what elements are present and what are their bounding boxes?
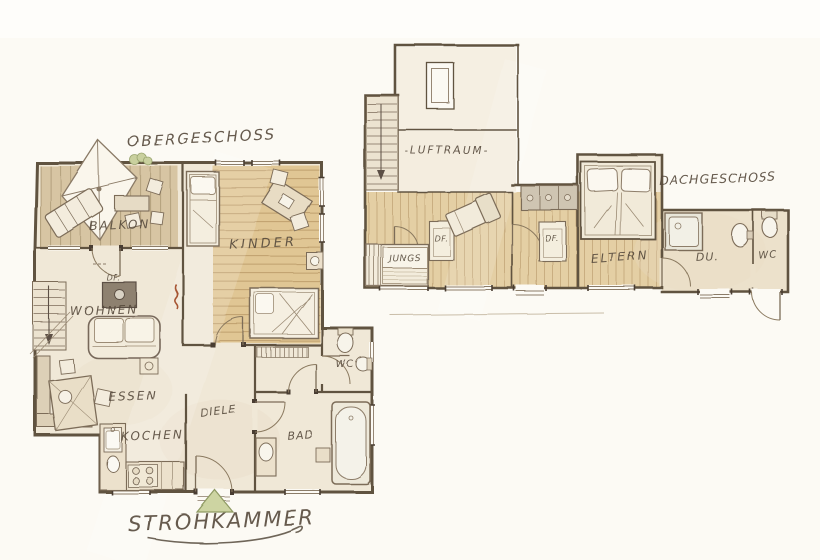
- toilet: [762, 211, 777, 237]
- room-label-du: DU.: [695, 250, 718, 264]
- roof-window-label-dg-1: DF.: [434, 234, 448, 243]
- staircase: [366, 96, 398, 190]
- wardrobe: [521, 186, 578, 210]
- room-label-wohnen: WOHNEN: [70, 302, 138, 318]
- desk-chair: [271, 170, 289, 187]
- roof-window-label-og: DF.: [106, 273, 120, 282]
- shower: [665, 213, 702, 250]
- wall-sink: [356, 357, 372, 371]
- kitchen-basin: [107, 456, 119, 472]
- cooktop: [128, 465, 158, 487]
- single-bed: [366, 244, 428, 286]
- single-bed: [250, 288, 318, 338]
- roof-window-label-dg-2: DF.: [545, 234, 559, 243]
- floorplan-drawing: OBERGESCHOSS BALKON KINDER DF. WOHNEN ES…: [0, 0, 820, 560]
- paper-top-band: [0, 0, 820, 38]
- kitchen-sink: [104, 428, 122, 452]
- balcony-table: [115, 196, 149, 211]
- toilet: [338, 328, 354, 353]
- wall-sink: [306, 252, 323, 269]
- dach-chimney-window: [427, 63, 454, 109]
- side-table: [140, 358, 158, 374]
- radiator: [256, 347, 308, 357]
- room-label-bad: BAD: [287, 428, 314, 443]
- room-label-essen: ESSEN: [108, 388, 157, 404]
- single-bed: [187, 172, 219, 246]
- room-label-luftraum: -LUFTRAUM-: [405, 145, 490, 157]
- balcony-chair: [150, 211, 164, 225]
- room-label-balkon: BALKON: [89, 217, 151, 233]
- eltern-furniture: [581, 162, 655, 239]
- double-bed: [581, 162, 655, 239]
- stool: [316, 448, 330, 462]
- washbasin: [256, 438, 276, 476]
- room-label-wc-dg: WC: [758, 249, 778, 261]
- room-label-wc-og: WC: [336, 359, 355, 370]
- sofa: [88, 316, 160, 358]
- room-label-kochen: KOCHEN: [121, 428, 184, 444]
- dining-table: [49, 375, 98, 430]
- room-label-jungs: JUNGS: [387, 253, 421, 264]
- bathtub: [332, 402, 370, 484]
- floorplan-sheet: OBERGESCHOSS BALKON KINDER DF. WOHNEN ES…: [0, 0, 820, 560]
- dining-chair: [59, 359, 74, 373]
